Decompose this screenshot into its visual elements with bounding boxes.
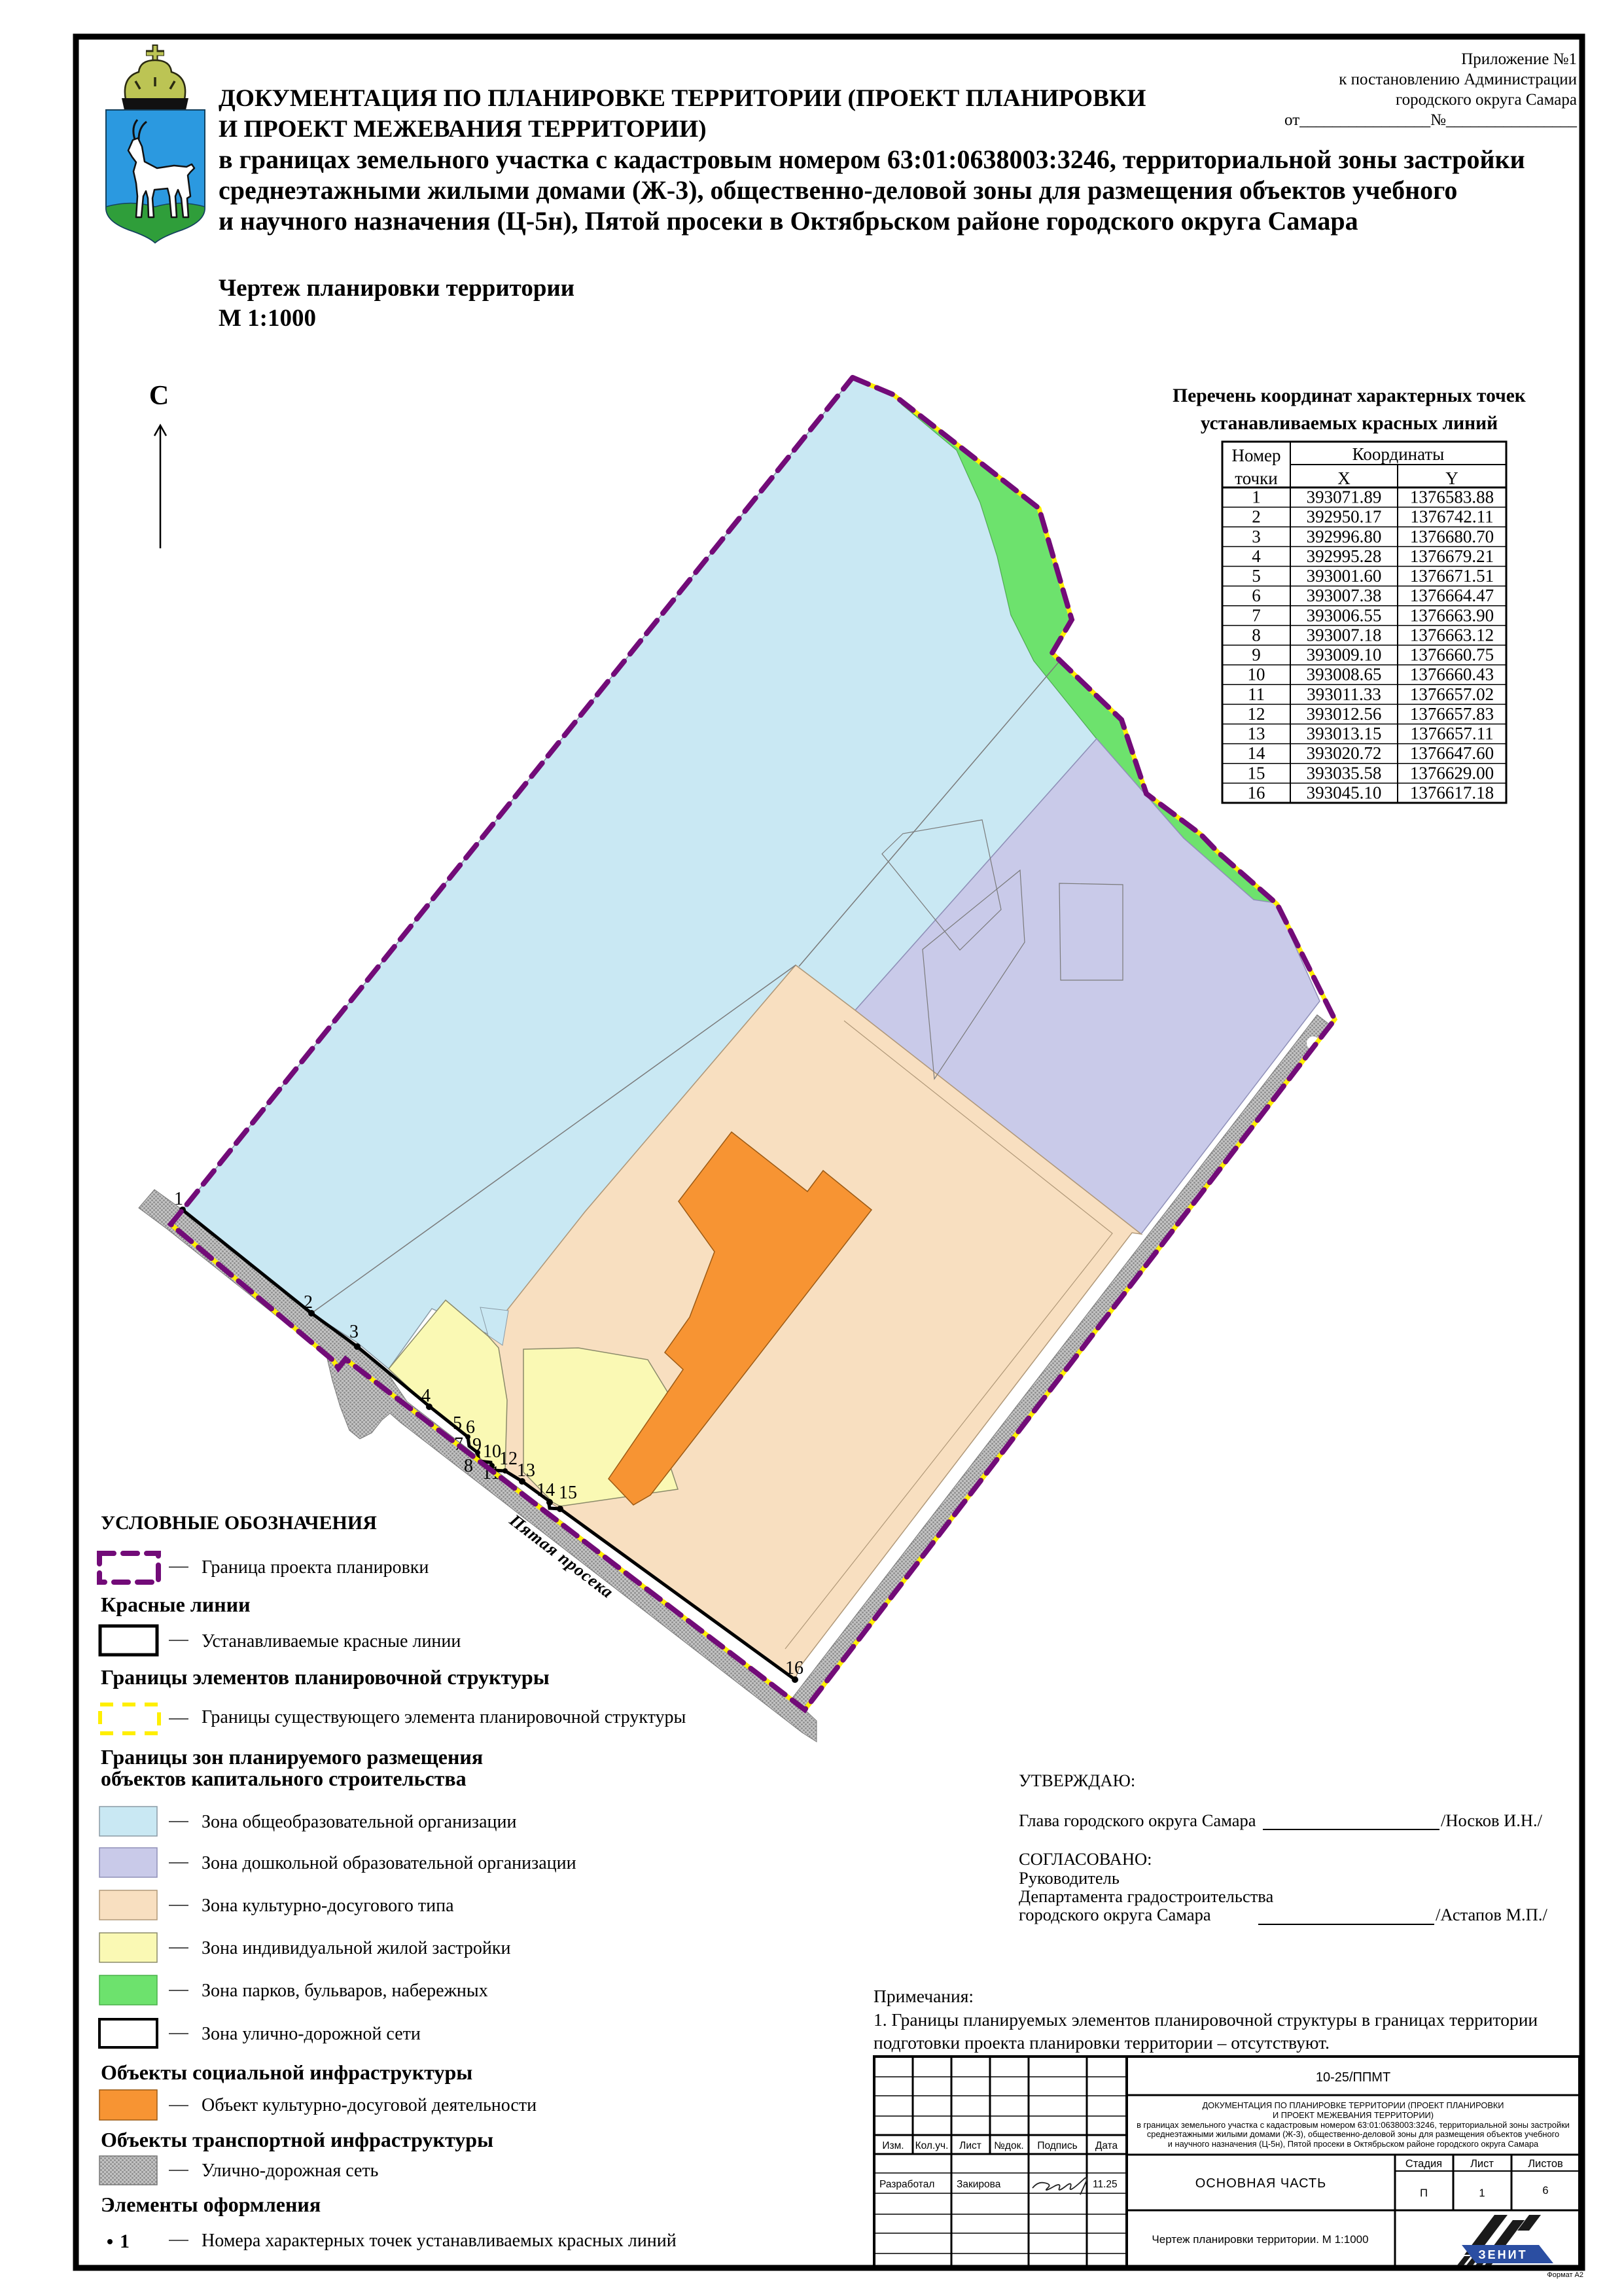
svg-text:1: 1: [1252, 487, 1261, 507]
svg-text:393035.58: 393035.58: [1307, 763, 1382, 783]
svg-text:Зона парков, бульваров, набере: Зона парков, бульваров, набережных: [202, 1981, 488, 2001]
svg-text:13: 13: [1248, 724, 1265, 743]
svg-text:ЗЕНИТ: ЗЕНИТ: [1478, 2248, 1527, 2261]
svg-text:Номера характерных точек устан: Номера характерных точек устанавливаемых…: [202, 2231, 677, 2251]
svg-text:393001.60: 393001.60: [1307, 566, 1382, 586]
svg-text:№док.: №док.: [994, 2140, 1023, 2151]
svg-text:11.25: 11.25: [1093, 2179, 1118, 2190]
svg-text:8: 8: [464, 1456, 473, 1476]
svg-text:И ПРОЕКТ МЕЖЕВАНИЯ ТЕРРИТОРИИ): И ПРОЕКТ МЕЖЕВАНИЯ ТЕРРИТОРИИ): [219, 116, 707, 143]
svg-text:/Астапов М.П./: /Астапов М.П./: [1436, 1905, 1547, 1924]
svg-text:393012.56: 393012.56: [1307, 704, 1382, 724]
svg-text:393020.72: 393020.72: [1307, 743, 1382, 763]
svg-text:8: 8: [1252, 625, 1261, 645]
svg-text:1376647.60: 1376647.60: [1410, 743, 1494, 763]
svg-text:2: 2: [1252, 507, 1261, 527]
svg-text:1. Границы планируемых элемент: 1. Границы планируемых элементов планиро…: [874, 2009, 1538, 2030]
svg-text:Элементы оформления: Элементы оформления: [101, 2193, 321, 2216]
svg-text:392995.28: 392995.28: [1307, 546, 1382, 566]
svg-text:X: X: [1337, 468, 1350, 488]
svg-text:Границы зон планируемого разме: Границы зон планируемого размещения: [101, 1745, 483, 1769]
svg-text:7: 7: [1252, 605, 1261, 625]
svg-text:Граница проекта планировки: Граница проекта планировки: [202, 1557, 429, 1578]
svg-text:ОСНОВНАЯ ЧАСТЬ: ОСНОВНАЯ ЧАСТЬ: [1195, 2176, 1326, 2191]
svg-text:1376679.21: 1376679.21: [1410, 546, 1494, 566]
svg-text:393011.33: 393011.33: [1307, 684, 1381, 704]
svg-text:Глава городского округа Самара: Глава городского округа Самара: [1019, 1810, 1256, 1830]
svg-text:Устанавливаемые красные линии: Устанавливаемые красные линии: [202, 1631, 461, 1651]
svg-text:Улично-дорожная сеть: Улично-дорожная сеть: [202, 2161, 378, 2181]
svg-text:3: 3: [349, 1322, 359, 1342]
svg-text:ДОКУМЕНТАЦИЯ ПО ПЛАНИРОВКЕ ТЕР: ДОКУМЕНТАЦИЯ ПО ПЛАНИРОВКЕ ТЕРРИТОРИИ (П…: [1202, 2100, 1504, 2110]
svg-text:Зона улично-дорожной сети: Зона улично-дорожной сети: [202, 2024, 421, 2044]
svg-text:393009.10: 393009.10: [1307, 645, 1382, 665]
svg-text:393008.65: 393008.65: [1307, 665, 1382, 684]
svg-text:устанавливаемых красных линий: устанавливаемых красных линий: [1201, 413, 1498, 434]
svg-text:392950.17: 392950.17: [1307, 507, 1382, 527]
svg-text:/Носков И.Н./: /Носков И.Н./: [1441, 1810, 1543, 1830]
svg-text:2: 2: [304, 1292, 313, 1313]
svg-text:Y: Y: [1445, 468, 1458, 488]
svg-text:1376663.90: 1376663.90: [1410, 605, 1494, 625]
svg-text:Кол.уч.: Кол.уч.: [915, 2140, 949, 2151]
svg-text:Зона дошкольной образовательно: Зона дошкольной образовательной организа…: [202, 1853, 576, 1873]
svg-text:Подпись: Подпись: [1037, 2140, 1077, 2151]
svg-text:4: 4: [1252, 546, 1261, 566]
svg-text:Координаты: Координаты: [1352, 444, 1445, 464]
svg-text:и научного назначения (Ц-5н),: и научного назначения (Ц-5н), Пятой прос…: [1168, 2139, 1539, 2149]
svg-text:1376671.51: 1376671.51: [1410, 566, 1494, 586]
svg-text:393013.15: 393013.15: [1307, 724, 1382, 743]
svg-text:Красные линии: Красные линии: [101, 1593, 251, 1616]
svg-text:Листов: Листов: [1528, 2158, 1563, 2170]
svg-text:393045.10: 393045.10: [1307, 783, 1382, 803]
svg-text:Зона общеобразовательной орган: Зона общеобразовательной организации: [202, 1812, 517, 1832]
svg-text:16: 16: [785, 1658, 803, 1678]
svg-text:Разработал: Разработал: [879, 2179, 934, 2190]
svg-text:Формат А2: Формат А2: [1547, 2271, 1583, 2279]
svg-text:к постановлению Администрации: к постановлению Администрации: [1339, 71, 1577, 88]
svg-text:ДОКУМЕНТАЦИЯ ПО ПЛАНИРОВКЕ ТЕР: ДОКУМЕНТАЦИЯ ПО ПЛАНИРОВКЕ ТЕРРИТОРИИ (П…: [219, 85, 1146, 112]
svg-text:5: 5: [453, 1413, 462, 1434]
svg-text:подготовки проекта планировки: подготовки проекта планировки территории…: [874, 2032, 1330, 2053]
svg-text:9: 9: [472, 1435, 482, 1455]
svg-text:точки: точки: [1235, 468, 1277, 488]
svg-text:в границах земельного участка: в границах земельного участка с кадастро…: [219, 145, 1525, 174]
svg-text:Лист: Лист: [1470, 2158, 1494, 2170]
svg-text:393006.55: 393006.55: [1307, 605, 1382, 625]
svg-text:6: 6: [1542, 2185, 1548, 2197]
svg-text:УТВЕРЖДАЮ:: УТВЕРЖДАЮ:: [1019, 1771, 1135, 1790]
svg-text:1376657.02: 1376657.02: [1410, 684, 1494, 704]
svg-text:И ПРОЕКТ МЕЖЕВАНИЯ ТЕРРИТОРИИ): И ПРОЕКТ МЕЖЕВАНИЯ ТЕРРИТОРИИ): [1273, 2110, 1434, 2120]
svg-text:4: 4: [421, 1386, 431, 1406]
svg-text:11: 11: [1248, 684, 1265, 704]
svg-text:1376660.43: 1376660.43: [1410, 665, 1494, 684]
svg-text:1: 1: [1479, 2187, 1485, 2199]
svg-text:Дата: Дата: [1095, 2140, 1118, 2151]
svg-text:П: П: [1420, 2187, 1428, 2199]
svg-text:10-25/ППМТ: 10-25/ППМТ: [1316, 2070, 1390, 2085]
svg-text:3: 3: [1252, 527, 1261, 546]
svg-text:Департамента градостроительств: Департамента градостроительства: [1019, 1886, 1273, 1906]
svg-text:1376660.75: 1376660.75: [1410, 645, 1494, 665]
svg-text:Зона индивидуальной жилой заст: Зона индивидуальной жилой застройки: [202, 1938, 510, 1958]
svg-text:1: 1: [174, 1189, 183, 1209]
svg-text:14: 14: [537, 1480, 555, 1500]
svg-text:393071.89: 393071.89: [1307, 487, 1382, 507]
svg-text:СОГЛАСОВАНО:: СОГЛАСОВАНО:: [1019, 1849, 1152, 1869]
svg-text:1376742.11: 1376742.11: [1410, 507, 1493, 527]
svg-text:Границы элементов планировочно: Границы элементов планировочной структур…: [101, 1665, 550, 1689]
svg-text:Объекты социальной инфраструкт: Объекты социальной инфраструктуры: [101, 2060, 472, 2084]
svg-text:9: 9: [1252, 645, 1261, 665]
svg-text:1376657.11: 1376657.11: [1410, 724, 1493, 743]
svg-text:15: 15: [1248, 763, 1265, 783]
svg-text:в границах земельного участка: в границах земельного участка с кадастро…: [1137, 2120, 1570, 2130]
svg-text:и научного назначения (Ц-5н),: и научного назначения (Ц-5н), Пятой прос…: [219, 206, 1358, 236]
svg-text:Стадия: Стадия: [1405, 2158, 1442, 2170]
svg-text:393007.38: 393007.38: [1307, 586, 1382, 605]
svg-text:12: 12: [1248, 704, 1265, 724]
svg-text:1: 1: [120, 2231, 130, 2252]
svg-text:15: 15: [559, 1483, 577, 1503]
svg-text:393007.18: 393007.18: [1307, 625, 1382, 645]
svg-text:Зона культурно-досугового типа: Зона культурно-досугового типа: [202, 1896, 454, 1916]
svg-text:16: 16: [1248, 783, 1265, 803]
svg-text:392996.80: 392996.80: [1307, 527, 1382, 546]
svg-text:среднеэтажными жилыми домами (: среднеэтажными жилыми домами (Ж-3), обще…: [1147, 2129, 1559, 2139]
svg-text:Границы существующего элемента: Границы существующего элемента планирово…: [202, 1707, 686, 1727]
svg-text:1376629.00: 1376629.00: [1410, 763, 1494, 783]
svg-text:Примечания:: Примечания:: [874, 1986, 974, 2006]
svg-text:1376617.18: 1376617.18: [1410, 783, 1494, 803]
svg-text:12: 12: [499, 1449, 518, 1469]
svg-text:5: 5: [1252, 566, 1261, 586]
svg-text:13: 13: [517, 1460, 535, 1481]
svg-text:Приложение №1: Приложение №1: [1461, 50, 1577, 68]
svg-text:Чертеж планировки территории: Чертеж планировки территории: [219, 275, 574, 302]
svg-text:Изм.: Изм.: [882, 2140, 904, 2151]
svg-text:Перечень координат характерных: Перечень координат характерных точек: [1173, 385, 1526, 406]
svg-text:Объекты транспортной инфрастру: Объекты транспортной инфраструктуры: [101, 2128, 493, 2151]
svg-text:Чертеж планировки территории.: Чертеж планировки территории. М 1:1000: [1152, 2233, 1368, 2246]
svg-text:Руководитель: Руководитель: [1019, 1868, 1120, 1888]
svg-text:1376583.88: 1376583.88: [1410, 487, 1494, 507]
svg-text:Закирова: Закирова: [957, 2179, 1001, 2190]
svg-text:1376663.12: 1376663.12: [1410, 625, 1494, 645]
svg-text:УСЛОВНЫЕ ОБОЗНАЧЕНИЯ: УСЛОВНЫЕ ОБОЗНАЧЕНИЯ: [101, 1512, 377, 1534]
svg-text:10: 10: [1248, 665, 1265, 684]
svg-text:М 1:1000: М 1:1000: [219, 305, 316, 332]
svg-text:10: 10: [483, 1441, 501, 1462]
svg-text:14: 14: [1248, 743, 1266, 763]
svg-text:объектов капитального строител: объектов капитального строительства: [101, 1767, 467, 1790]
svg-text:С: С: [149, 381, 169, 411]
svg-text:Объект культурно-досуговой дея: Объект культурно-досуговой деятельности: [202, 2095, 537, 2115]
svg-text:городского округа Самара: городского округа Самара: [1019, 1905, 1211, 1924]
svg-text:1376664.47: 1376664.47: [1410, 586, 1494, 605]
svg-text:6: 6: [1252, 586, 1261, 605]
svg-text:среднеэтажными жилыми домами (: среднеэтажными жилыми домами (Ж-3), обще…: [219, 175, 1457, 205]
svg-text:Лист: Лист: [959, 2140, 981, 2151]
svg-text:от________________№___________: от________________№________________: [1284, 111, 1577, 129]
svg-text:1376680.70: 1376680.70: [1410, 527, 1494, 546]
svg-text:городского округа Самара: городского округа Самара: [1396, 91, 1577, 109]
svg-text:1376657.83: 1376657.83: [1410, 704, 1494, 724]
svg-text:Номер: Номер: [1231, 446, 1280, 465]
